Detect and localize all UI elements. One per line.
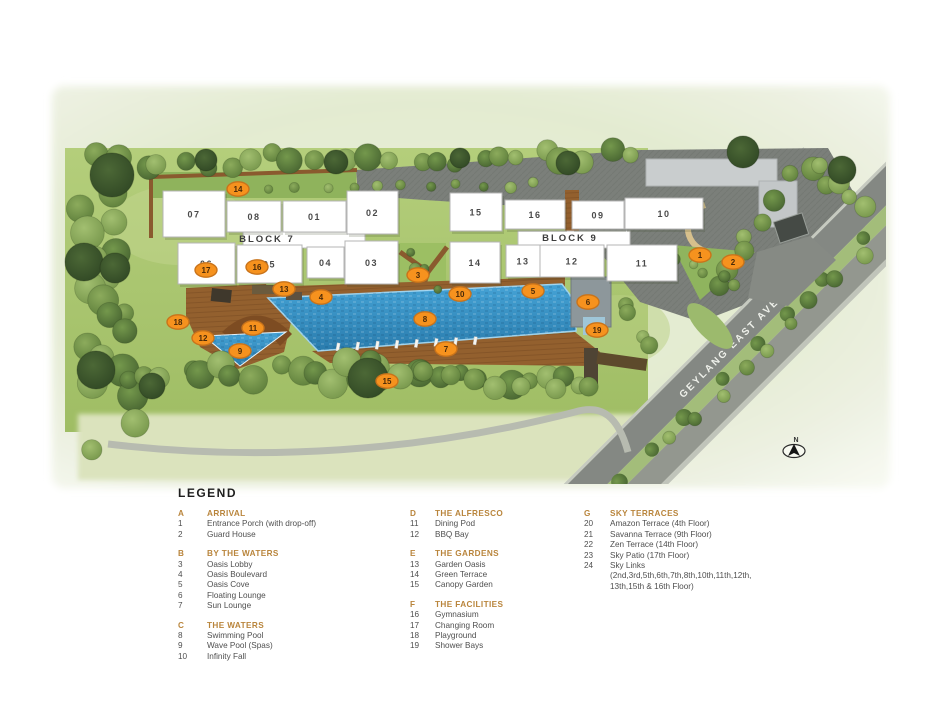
north-label: N [793, 437, 798, 444]
carpark-roof [646, 159, 777, 186]
block-label-07: 07 [187, 210, 200, 220]
block-label-04: 04 [319, 258, 332, 268]
plan-marker-label: 6 [586, 298, 591, 307]
legend-column: GSKY TERRACES20Amazon Terrace (4th Floor… [584, 509, 751, 601]
block-label-01: 01 [308, 212, 321, 222]
legend-item: 20Amazon Terrace (4th Floor) [584, 519, 751, 529]
legend-item: 22Zen Terrace (14th Floor) [584, 540, 751, 550]
legend-item: 13Garden Oasis [410, 560, 503, 570]
legend-section-heading: FTHE FACILITIES [410, 600, 503, 610]
plan-marker-label: 7 [444, 345, 449, 354]
legend-section-heading: AARRIVAL [178, 509, 316, 519]
block-label-14: 14 [468, 258, 481, 268]
legend-section-F: FTHE FACILITIES16Gymnasium17Changing Roo… [410, 600, 503, 652]
block-label-09: 09 [591, 211, 604, 221]
legend-item: 15Canopy Garden [410, 580, 503, 590]
legend-item: 7Sun Lounge [178, 601, 316, 611]
plan-marker-label: 10 [456, 290, 465, 299]
legend-item: 8Swimming Pool [178, 631, 316, 641]
block-group-label: BLOCK 7 [239, 234, 295, 245]
block-label-02: 02 [366, 208, 379, 218]
plan-marker-label: 2 [731, 258, 736, 267]
block-label-10: 10 [657, 209, 670, 219]
legend-section-heading: DTHE ALFRESCO [410, 509, 503, 519]
legend-section-G: GSKY TERRACES20Amazon Terrace (4th Floor… [584, 509, 751, 592]
legend-column: DTHE ALFRESCO11Dining Pod12BBQ BayETHE G… [410, 509, 503, 661]
plan-marker-label: 11 [249, 324, 258, 333]
legend-item: 21Savanna Terrace (9th Floor) [584, 530, 751, 540]
plan-marker-label: 12 [199, 334, 208, 343]
legend-title: LEGEND [178, 486, 237, 500]
legend-section-B: BBY THE WATERS3Oasis Lobby4Oasis Bouleva… [178, 549, 316, 611]
plan-marker-label: 3 [416, 271, 421, 280]
legend-section-D: DTHE ALFRESCO11Dining Pod12BBQ Bay [410, 509, 503, 540]
block-label-03: 03 [365, 258, 378, 268]
legend-column: AARRIVAL1Entrance Porch (with drop-off)2… [178, 509, 316, 671]
legend-item: 19Shower Bays [410, 641, 503, 651]
plan-marker-label: 4 [319, 293, 324, 302]
legend-item: 12BBQ Bay [410, 530, 503, 540]
plan-marker-label: 1 [698, 251, 703, 260]
plan-marker-label: 5 [531, 287, 536, 296]
plan-marker-label: 9 [238, 347, 243, 356]
site-plan-page: GEYLANG EAST AVE 1 [0, 0, 943, 717]
legend-item: 4Oasis Boulevard [178, 570, 316, 580]
block-label-12: 12 [565, 257, 578, 267]
legend-item: 14Green Terrace [410, 570, 503, 580]
legend-item: 11Dining Pod [410, 519, 503, 529]
legend-item: 2Guard House [178, 530, 316, 540]
legend-item: 6Floating Lounge [178, 591, 316, 601]
legend-item-continuation: (2nd,3rd,5th,6th,7th,8th,10th,11th,12th, [584, 571, 751, 581]
plan-marker-label: 14 [234, 185, 243, 194]
block-label-15: 15 [469, 208, 482, 218]
legend-section-C: CTHE WATERS8Swimming Pool9Wave Pool (Spa… [178, 621, 316, 663]
legend-section-heading: BBY THE WATERS [178, 549, 316, 559]
plan-marker-label: 16 [253, 263, 262, 272]
legend-item: 16Gymnasium [410, 610, 503, 620]
legend-item: 5Oasis Cove [178, 580, 316, 590]
plan-marker-label: 13 [280, 285, 289, 294]
legend-item: 24Sky Links [584, 561, 751, 571]
legend-section-E: ETHE GARDENS13Garden Oasis14Green Terrac… [410, 549, 503, 591]
legend-item: 9Wave Pool (Spas) [178, 641, 316, 651]
legend-item: 3Oasis Lobby [178, 560, 316, 570]
legend-item: 10Infinity Fall [178, 652, 316, 662]
legend-item: 1Entrance Porch (with drop-off) [178, 519, 316, 529]
legend-section-A: AARRIVAL1Entrance Porch (with drop-off)2… [178, 509, 316, 540]
legend-item: 18Playground [410, 631, 503, 641]
legend-section-heading: GSKY TERRACES [584, 509, 751, 519]
plan-marker-label: 15 [383, 377, 392, 386]
block-group-label: BLOCK 9 [542, 233, 598, 244]
legend-item: 17Changing Room [410, 621, 503, 631]
block-label-11: 11 [636, 259, 649, 269]
block-label-16: 16 [528, 210, 541, 220]
plan-marker-label: 19 [593, 326, 602, 335]
legend-section-heading: CTHE WATERS [178, 621, 316, 631]
plan-marker-label: 17 [202, 266, 211, 275]
legend-item-continuation: 13th,15th & 16th Floor) [584, 582, 751, 592]
legend-item: 23Sky Patio (17th Floor) [584, 551, 751, 561]
block-label-08: 08 [247, 212, 260, 222]
plan-marker-label: 18 [174, 318, 183, 327]
plan-marker-label: 8 [423, 315, 428, 324]
block-label-13: 13 [516, 257, 529, 267]
legend-section-heading: ETHE GARDENS [410, 549, 503, 559]
